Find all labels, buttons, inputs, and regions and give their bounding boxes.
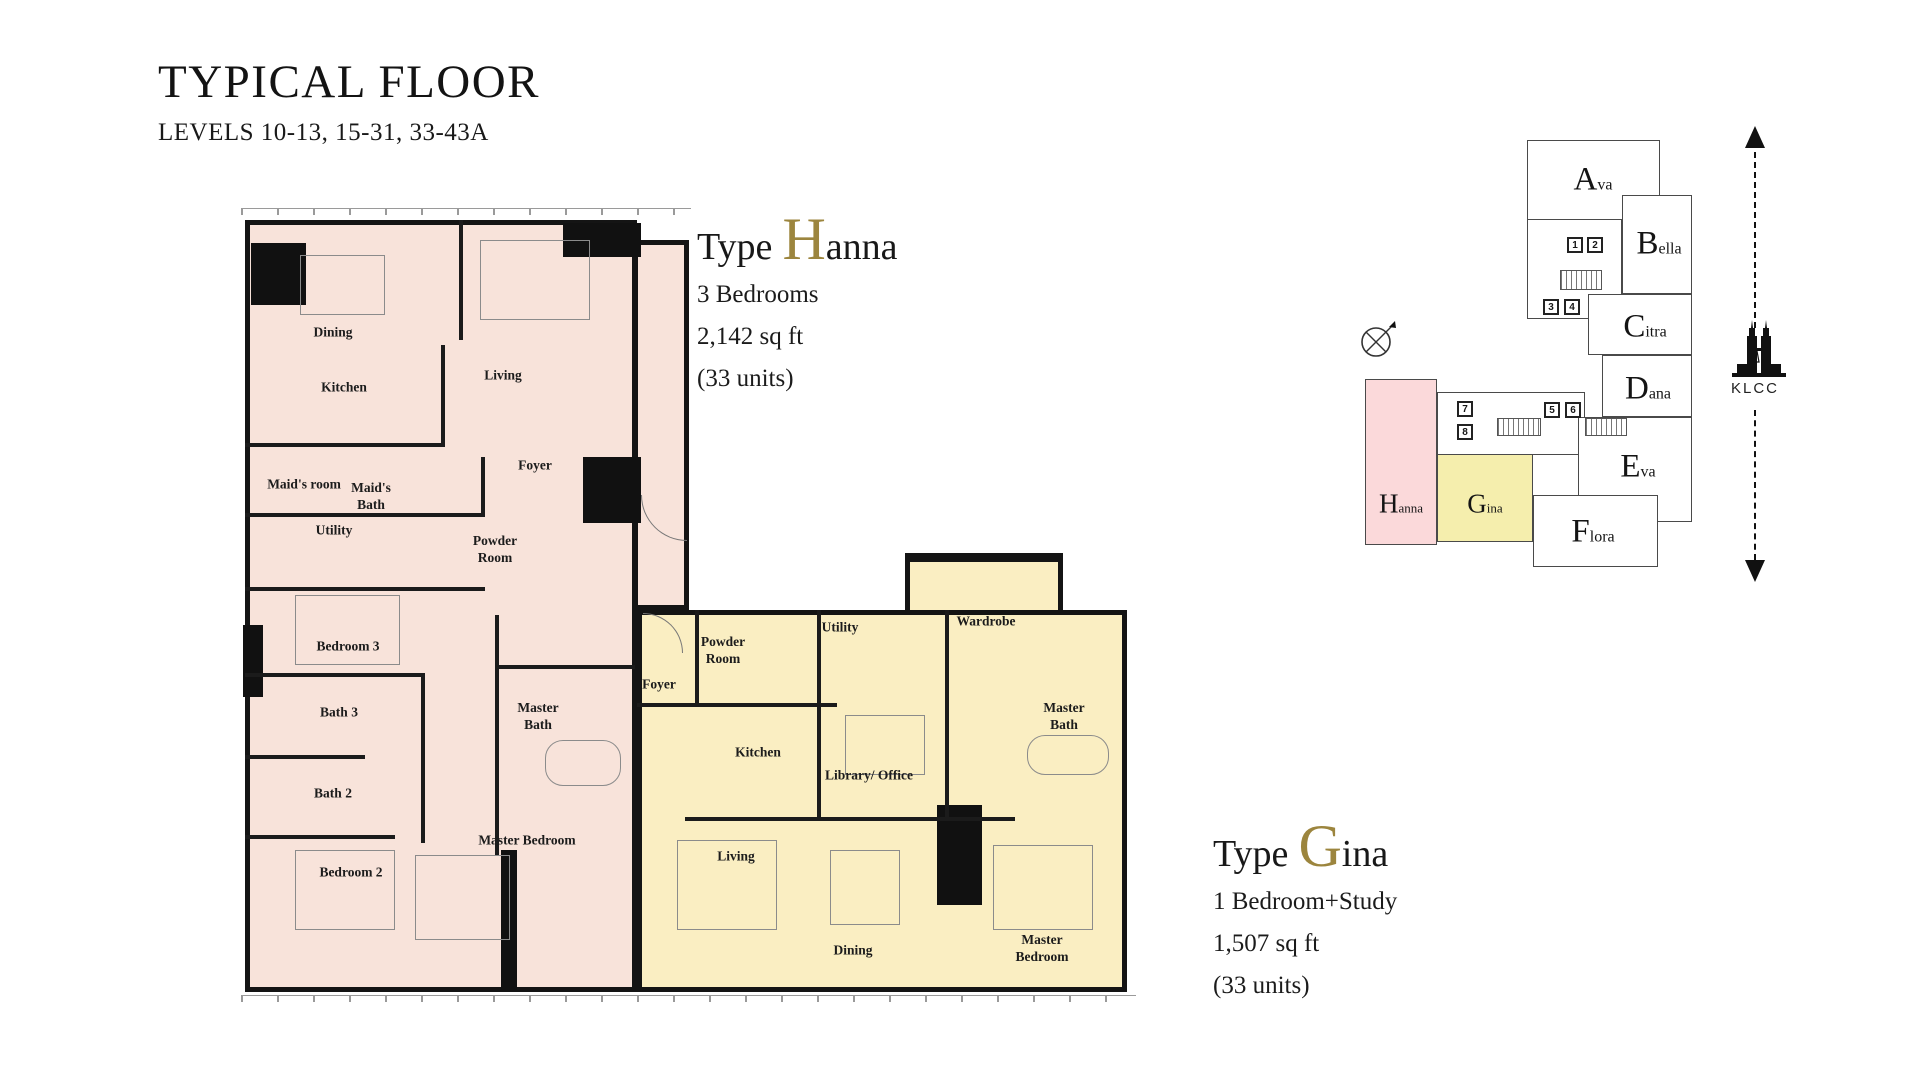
page-subtitle: LEVELS 10-13, 15-31, 33-43A [158, 119, 540, 147]
type-gina-area: 1,507 sq ft [1213, 923, 1397, 965]
furniture-bathtub [1027, 735, 1109, 775]
lift-number-box: 1 [1567, 237, 1583, 253]
unit-initial: H [1379, 489, 1399, 519]
lift-number-box: 6 [1565, 402, 1581, 418]
room-label-hanna: Powder Room [473, 533, 517, 567]
wall-column [583, 457, 641, 523]
unit-initial: C [1623, 309, 1645, 345]
compass-icon [1355, 317, 1401, 363]
type-prefix: Type [1213, 833, 1288, 875]
dashed-line [1754, 410, 1756, 560]
type-gina-units: (33 units) [1213, 965, 1397, 1007]
wall-segment [245, 443, 445, 447]
wall-segment [459, 220, 463, 340]
lift-number-box: 4 [1564, 299, 1580, 315]
wall-segment [245, 755, 365, 759]
lift-number-box: 7 [1457, 401, 1473, 417]
type-initial-gold: G [1298, 813, 1341, 879]
room-label-gina: Master Bedroom [996, 932, 1089, 966]
keyplan-unit-label: Eva [1620, 449, 1655, 486]
unit-rest: lora [1590, 529, 1615, 546]
furniture-dining-table [830, 850, 900, 925]
wall-segment [945, 610, 949, 820]
room-label-gina: Library/ Office [825, 768, 913, 785]
keyplan-unit-hanna [1365, 379, 1437, 545]
wall-segment [685, 817, 1015, 821]
wall-segment [817, 610, 821, 820]
wall-column [251, 243, 306, 305]
room-label-hanna: Bath 2 [314, 786, 352, 803]
room-label-gina: Living [717, 849, 755, 866]
facade-ticks-top [241, 208, 691, 215]
room-label-gina: Master Bath [1043, 700, 1084, 734]
type-rest: ina [1342, 833, 1388, 875]
wall-segment [695, 610, 699, 705]
room-label-hanna: Maid's Bath [351, 480, 391, 514]
wall-segment [421, 673, 425, 843]
furniture-desk [845, 715, 925, 775]
facade-ticks-bottom [241, 995, 1136, 1002]
south-arrow-icon [1745, 560, 1765, 582]
unit-rest: itra [1645, 324, 1666, 341]
wall-segment [441, 345, 445, 447]
room-label-gina: Utility [822, 620, 859, 637]
unit-rest: ella [1658, 241, 1681, 258]
room-label-hanna: Utility [316, 523, 353, 540]
room-label-hanna: Kitchen [321, 380, 367, 397]
unit-initial: A [1574, 162, 1598, 198]
wall-column [243, 625, 263, 697]
unit-initial: F [1571, 514, 1589, 550]
wall-segment [495, 615, 499, 855]
unit-rest: ana [1649, 386, 1671, 403]
klcc-towers-icon [1720, 318, 1790, 378]
unit-rest: anna [1398, 501, 1423, 516]
keyplan-unit-label: Bella [1636, 226, 1681, 263]
room-label-hanna: Living [484, 368, 522, 385]
room-label-gina: Powder Room [701, 634, 745, 668]
lift-number-box: 8 [1457, 424, 1473, 440]
unit-initial: D [1625, 371, 1649, 407]
unit-gina-wardrobe-area [905, 553, 1063, 615]
wall-segment [245, 673, 425, 677]
furniture-bathtub [545, 740, 621, 786]
room-label-hanna: Foyer [518, 458, 552, 475]
unit-rest: ina [1487, 501, 1503, 516]
unit-rest: va [1597, 177, 1612, 194]
room-label-hanna: Bath 3 [320, 705, 358, 722]
furniture-bed [993, 845, 1093, 930]
room-label-gina: Dining [833, 943, 872, 960]
furniture-dining-table [300, 255, 385, 315]
floorplan: DiningKitchenLivingMaid's roomMaid's Bat… [245, 195, 1135, 1000]
keyplan-unit-label: Flora [1571, 514, 1614, 551]
furniture-bed [295, 850, 395, 930]
keyplan-unit-label: Dana [1625, 371, 1671, 408]
stairs-hatch [1497, 418, 1541, 436]
room-label-hanna: Bedroom 3 [316, 639, 379, 656]
room-label-gina: Kitchen [735, 745, 781, 762]
klcc-label: KLCC [1731, 380, 1779, 397]
unit-hanna-foyer-area [633, 240, 689, 610]
north-arrow-icon [1745, 126, 1765, 148]
unit-initial: G [1467, 489, 1487, 519]
klcc-indicator: KLCC [1715, 118, 1795, 588]
lift-number-box: 2 [1587, 237, 1603, 253]
stairs-hatch [1560, 270, 1602, 290]
furniture-bed [415, 855, 510, 940]
wall-segment [495, 665, 635, 669]
unit-initial: E [1620, 449, 1640, 485]
room-label-hanna: Dining [313, 325, 352, 342]
room-label-hanna: Maid's room [267, 477, 341, 494]
keyplan-unit-label: Gina [1467, 489, 1502, 520]
dashed-line [1754, 152, 1756, 328]
keyplan-unit-label: Citra [1623, 309, 1666, 346]
page-header: TYPICAL FLOOR LEVELS 10-13, 15-31, 33-43… [158, 55, 540, 147]
wall-segment [245, 587, 485, 591]
room-label-hanna: Master Bath [517, 700, 558, 734]
type-gina-bedrooms: 1 Bedroom+Study [1213, 881, 1397, 923]
furniture-sofa [480, 240, 590, 320]
keyplan-unit-label: Hanna [1379, 489, 1423, 520]
room-label-gina: Foyer [642, 677, 676, 694]
stairs-hatch [1585, 418, 1627, 436]
room-label-hanna: Bedroom 2 [319, 865, 382, 882]
type-gina-block: TypeGina 1 Bedroom+Study 1,507 sq ft (33… [1213, 812, 1397, 1007]
page-title: TYPICAL FLOOR [158, 55, 540, 109]
wall-segment [481, 457, 485, 517]
wall-segment [637, 703, 837, 707]
unit-initial: B [1636, 226, 1658, 262]
type-gina-heading: TypeGina [1213, 812, 1397, 881]
keyplan-unit-label: Ava [1574, 162, 1613, 199]
room-label-gina: Wardrobe [956, 614, 1015, 631]
unit-rest: va [1641, 464, 1656, 481]
lift-number-box: 3 [1543, 299, 1559, 315]
wall-segment [245, 835, 395, 839]
lift-number-box: 5 [1544, 402, 1560, 418]
room-label-hanna: Master Bedroom [478, 833, 575, 850]
